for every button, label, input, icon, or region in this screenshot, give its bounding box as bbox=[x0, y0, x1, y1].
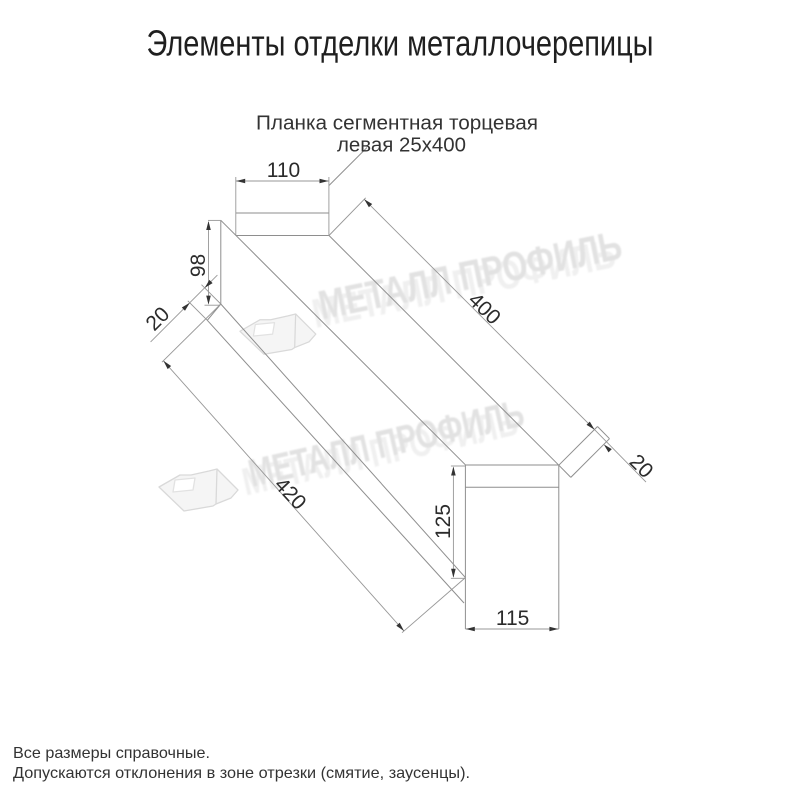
svg-text:левая 25х400: левая 25х400 bbox=[337, 135, 466, 157]
svg-text:Все размеры справочные.: Все размеры справочные. bbox=[13, 745, 210, 762]
svg-text:110: 110 bbox=[267, 159, 300, 182]
svg-text:98: 98 bbox=[187, 254, 210, 277]
svg-text:Допускаются отклонения в зоне: Допускаются отклонения в зоне отрезки (с… bbox=[13, 765, 470, 782]
svg-text:115: 115 bbox=[496, 607, 529, 630]
svg-text:125: 125 bbox=[432, 504, 455, 539]
svg-text:Планка сегментная торцевая: Планка сегментная торцевая bbox=[256, 113, 538, 135]
svg-text:Элементы отделки металлочерепи: Элементы отделки металлочерепицы bbox=[147, 22, 654, 63]
